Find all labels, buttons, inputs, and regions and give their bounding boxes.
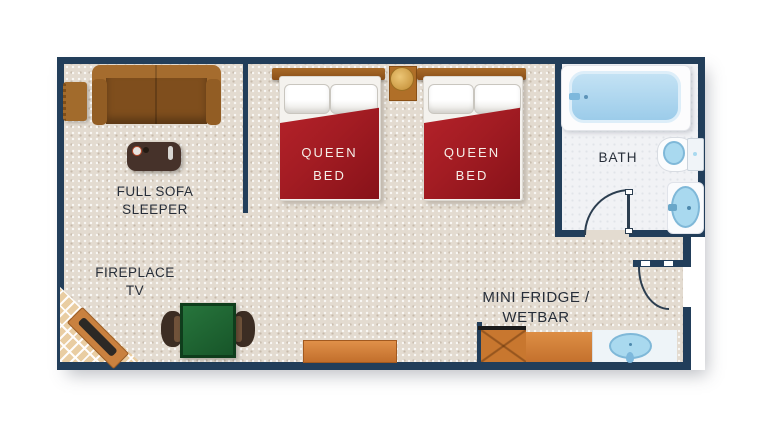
toilet-tank [687,138,704,171]
bathroom-door-jamb-top [625,189,633,195]
bathtub-faucet-icon [569,93,580,100]
wetbar-label-line2: WETBAR [438,308,634,328]
wetbar-counter [526,332,592,362]
coffee-cup-icon [132,146,142,156]
entry-door-jamb-left [641,261,650,266]
wetbar-sink-counter [592,330,677,362]
entry-door-jamb-right [664,261,673,266]
bed2-label-line1: QUEEN [424,142,520,165]
chair-icon [161,311,182,347]
chair-icon [234,311,255,347]
bathroom-door-jamb-bottom [625,228,633,234]
toilet-flush-dot [693,152,697,156]
floorplan: FULL SOFA SLEEPER FIREPLACE TV QUEEN BED… [0,0,761,430]
bathroom-door-leaf [627,189,630,232]
remote-icon [168,146,173,160]
table-knob-icon [143,147,149,153]
fireplace-label-line2: TV [65,282,205,300]
pillow-icon [284,84,330,114]
mini-fridge-icon [481,330,526,362]
wall-bottom [57,362,691,370]
dining-table-icon [180,303,236,358]
sofa-label-line2: SLEEPER [85,201,225,219]
bathtub-drain [584,95,588,99]
sofa-label-line1: FULL SOFA [85,183,225,201]
bed2-label: QUEEN BED [424,142,520,188]
chair-seat [235,316,242,342]
sofa-armrest-right [206,79,221,125]
bedroom-divider-wall [243,57,248,213]
bed1-label: QUEEN BED [280,142,379,188]
sofa-armrest-left [92,79,107,125]
sink-drain [687,206,691,210]
fireplace-label: FIREPLACE TV [65,264,205,300]
sofa-icon [92,65,221,125]
bed1-label-line2: BED [280,165,379,188]
wall-top [57,57,705,64]
wetbar-sink-drain [629,343,632,346]
toilet-bowl [663,141,685,165]
pillow-icon [428,84,474,114]
wall-right-lower-b [683,307,691,370]
wetbar-label: MINI FRIDGE / WETBAR [438,288,634,328]
bathtub-icon [561,65,691,131]
wetbar-faucet-icon [626,352,634,363]
ottoman-icon [63,82,87,121]
bed2-label-line2: BED [424,165,520,188]
pedestal-sink-icon [667,182,704,234]
bath-label: BATH [585,149,651,167]
sofa-label: FULL SOFA SLEEPER [85,183,225,219]
lamp-icon [390,67,414,91]
bed1-label-line1: QUEEN [280,142,379,165]
wetbar-label-line1: MINI FRIDGE / [438,288,634,308]
sink-faucet-icon [668,204,677,211]
sofa-seat-seam [155,78,157,124]
fireplace-label-line1: FIREPLACE [65,264,205,282]
coffee-table-icon [127,142,181,171]
dresser-icon [303,340,397,363]
